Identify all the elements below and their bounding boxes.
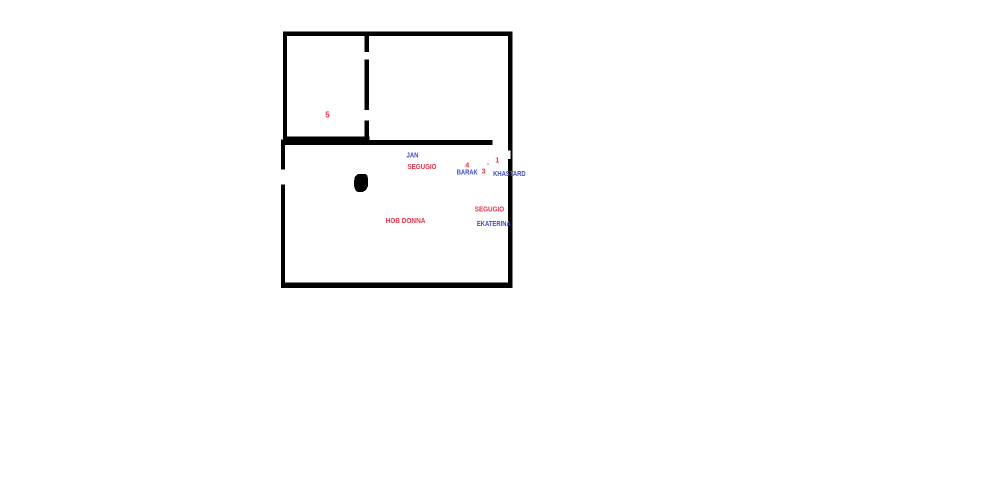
svg-text:HOB DONNA: HOB DONNA xyxy=(386,216,426,225)
svg-text:SEGUGIO: SEGUGIO xyxy=(408,162,437,171)
svg-text:5: 5 xyxy=(325,110,330,119)
svg-text:KHASTARD: KHASTARD xyxy=(493,169,525,178)
svg-text:1: 1 xyxy=(495,155,499,164)
svg-text:SEGUGIO: SEGUGIO xyxy=(475,204,505,213)
svg-text:BARAK: BARAK xyxy=(457,168,479,177)
svg-text:EKATERINA: EKATERINA xyxy=(477,219,511,228)
svg-text:3: 3 xyxy=(482,167,486,176)
svg-text:JAN: JAN xyxy=(407,150,419,159)
